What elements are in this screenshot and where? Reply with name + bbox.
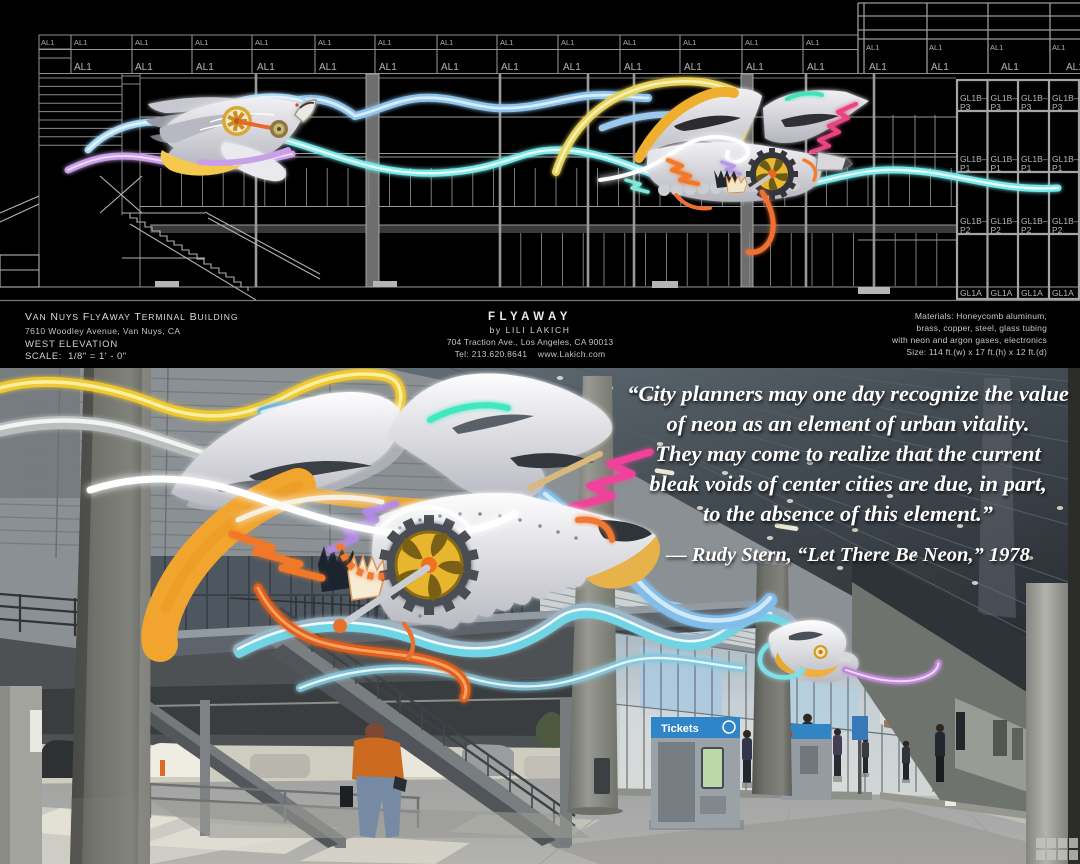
svg-text:AL1: AL1 xyxy=(929,43,942,52)
svg-text:AL1: AL1 xyxy=(684,62,702,73)
svg-text:AL1: AL1 xyxy=(257,62,275,73)
svg-text:AL1: AL1 xyxy=(319,62,337,73)
svg-text:AL1: AL1 xyxy=(746,62,764,73)
svg-text:P2: P2 xyxy=(960,225,971,235)
svg-text:AL1: AL1 xyxy=(1066,62,1080,73)
svg-text:AL1: AL1 xyxy=(1052,43,1065,52)
svg-text:P1: P1 xyxy=(960,163,971,173)
svg-text:GL1A: GL1A xyxy=(991,288,1013,298)
svg-text:Tickets: Tickets xyxy=(661,723,699,735)
svg-text:P1: P1 xyxy=(1021,163,1032,173)
svg-text:AL1: AL1 xyxy=(135,38,148,47)
svg-text:AL1: AL1 xyxy=(440,38,453,47)
svg-text:AL1: AL1 xyxy=(74,62,92,73)
svg-text:AL1: AL1 xyxy=(745,38,758,47)
svg-text:GL1A: GL1A xyxy=(960,288,982,298)
svg-text:GL1A: GL1A xyxy=(1052,288,1074,298)
svg-text:P3: P3 xyxy=(991,102,1002,112)
svg-text:AL1: AL1 xyxy=(807,62,825,73)
svg-text:AL1: AL1 xyxy=(866,43,879,52)
svg-text:AL1: AL1 xyxy=(135,62,153,73)
svg-text:AL1: AL1 xyxy=(74,38,87,47)
svg-text:AL1: AL1 xyxy=(441,62,459,73)
svg-text:AL1: AL1 xyxy=(624,62,642,73)
svg-text:P2: P2 xyxy=(1021,225,1032,235)
svg-text:AL1: AL1 xyxy=(501,62,519,73)
svg-text:GL1A: GL1A xyxy=(1021,288,1043,298)
svg-text:AL1: AL1 xyxy=(623,38,636,47)
svg-text:AL1: AL1 xyxy=(563,62,581,73)
svg-text:AL1: AL1 xyxy=(806,38,819,47)
svg-text:P2: P2 xyxy=(1052,225,1063,235)
svg-text:P1: P1 xyxy=(991,163,1002,173)
svg-text:AL1: AL1 xyxy=(378,38,391,47)
svg-text:AL1: AL1 xyxy=(195,38,208,47)
svg-text:AL1: AL1 xyxy=(196,62,214,73)
svg-text:AL1: AL1 xyxy=(990,43,1003,52)
svg-text:AL1: AL1 xyxy=(561,38,574,47)
svg-text:P2: P2 xyxy=(991,225,1002,235)
svg-text:AL1: AL1 xyxy=(683,38,696,47)
svg-text:AL1: AL1 xyxy=(318,38,331,47)
svg-text:P3: P3 xyxy=(1021,102,1032,112)
svg-text:AL1: AL1 xyxy=(869,62,887,73)
svg-text:P1: P1 xyxy=(1052,163,1063,173)
svg-text:AL1: AL1 xyxy=(379,62,397,73)
svg-text:AL1: AL1 xyxy=(41,38,54,47)
svg-text:AL1: AL1 xyxy=(931,62,949,73)
svg-text:AL1: AL1 xyxy=(1001,62,1019,73)
svg-text:AL1: AL1 xyxy=(500,38,513,47)
svg-text:P3: P3 xyxy=(960,102,971,112)
svg-text:AL1: AL1 xyxy=(255,38,268,47)
svg-text:P3: P3 xyxy=(1052,102,1063,112)
